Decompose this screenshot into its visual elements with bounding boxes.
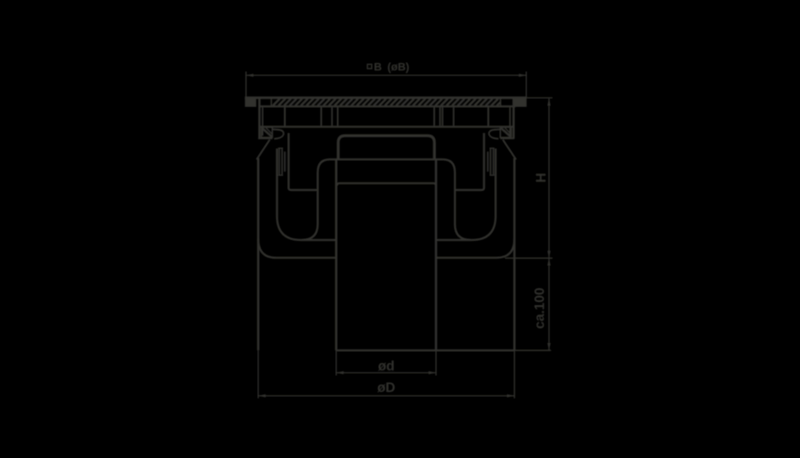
svg-text:B (øB): B (øB) bbox=[374, 61, 410, 73]
svg-text:ød: ød bbox=[378, 358, 395, 373]
svg-text:ca.100: ca.100 bbox=[532, 288, 547, 329]
svg-text:øD: øD bbox=[377, 380, 395, 395]
svg-text:H: H bbox=[533, 173, 548, 183]
